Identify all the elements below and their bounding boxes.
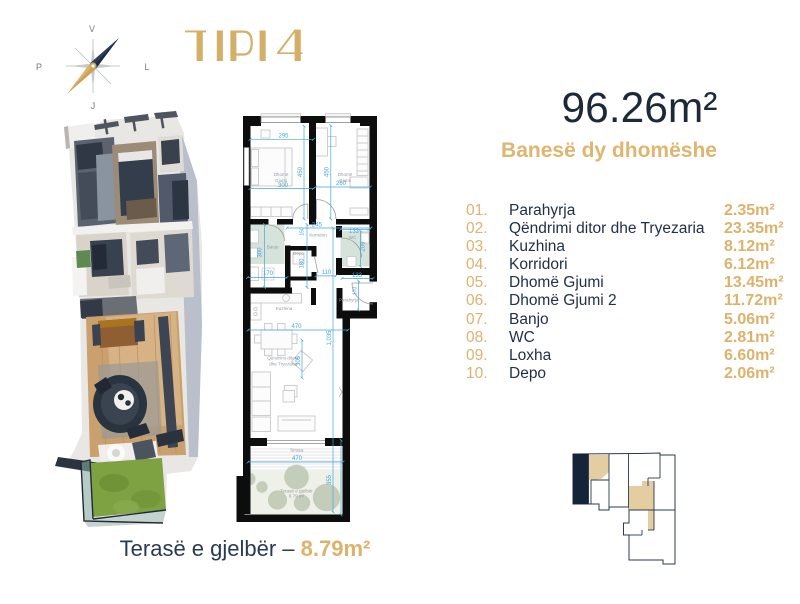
- svg-text:470: 470: [292, 456, 303, 462]
- svg-text:Depo: Depo: [293, 251, 304, 256]
- svg-text:470: 470: [291, 324, 302, 330]
- svg-text:450: 450: [325, 166, 331, 177]
- svg-text:WC: WC: [349, 235, 357, 240]
- svg-text:1,035: 1,035: [327, 330, 333, 346]
- svg-text:150: 150: [300, 227, 306, 236]
- svg-text:8.79 m²: 8.79 m²: [289, 494, 305, 499]
- svg-text:110: 110: [322, 270, 332, 276]
- svg-text:300: 300: [258, 247, 264, 258]
- svg-text:Dhomë: Dhomë: [274, 172, 289, 177]
- svg-text:133: 133: [352, 273, 363, 279]
- svg-text:209: 209: [361, 241, 367, 252]
- svg-text:295: 295: [278, 134, 289, 140]
- svg-text:Kuzhina: Kuzhina: [276, 306, 293, 311]
- svg-text:Gjumi: Gjumi: [275, 178, 287, 183]
- svg-text:V: V: [89, 24, 95, 34]
- svg-text:Banjo: Banjo: [267, 245, 279, 250]
- svg-text:180: 180: [300, 258, 306, 269]
- svg-text:Dhomë: Dhomë: [338, 172, 353, 177]
- svg-text:170: 170: [353, 287, 359, 296]
- svg-text:300: 300: [278, 183, 289, 189]
- svg-text:Gjumi: Gjumi: [339, 178, 351, 183]
- svg-text:170: 170: [263, 271, 274, 277]
- svg-text:355: 355: [327, 474, 333, 485]
- svg-text:Terasa: Terasa: [290, 448, 304, 453]
- svg-text:245: 245: [312, 223, 323, 229]
- svg-text:L: L: [144, 62, 149, 72]
- svg-text:Parahyrja: Parahyrja: [339, 298, 359, 303]
- svg-text:P: P: [36, 62, 42, 72]
- svg-text:Qëndrimi ditorë: Qëndrimi ditorë: [267, 356, 299, 361]
- svg-text:Korridori: Korridori: [309, 233, 326, 238]
- svg-text:dhe Tryezaria: dhe Tryezaria: [269, 362, 297, 367]
- svg-text:450: 450: [298, 166, 304, 177]
